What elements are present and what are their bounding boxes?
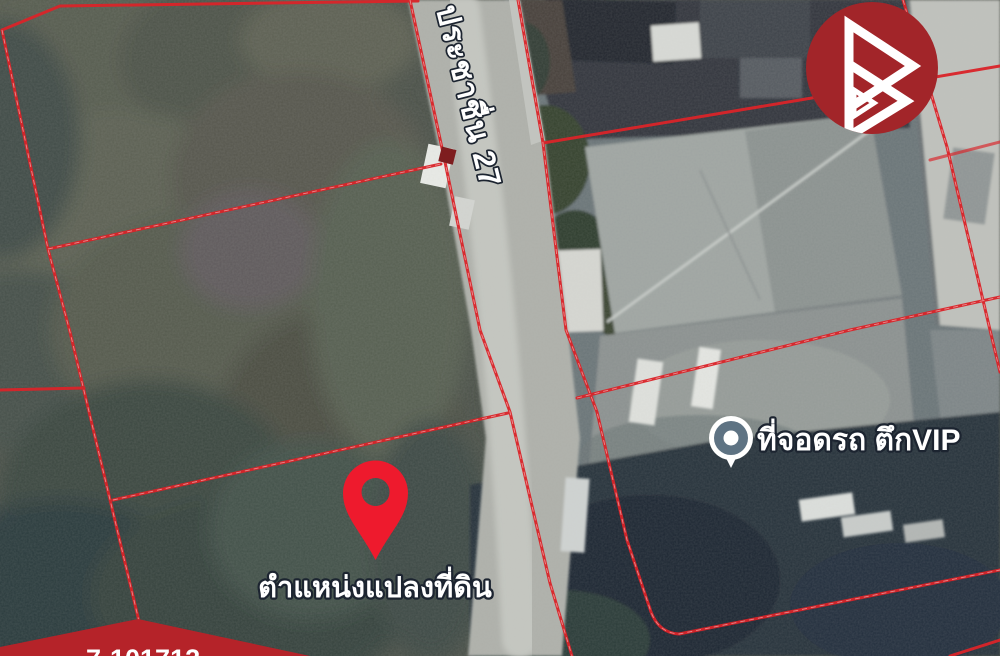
satellite-map-image: ประชาชื่น 27 ที่จอดรถ ตึกVIP ตำแหน่งแปลง… (0, 0, 1000, 656)
map-canvas: ประชาชื่น 27 ที่จอดรถ ตึกVIP ตำแหน่งแปลง… (0, 0, 1000, 656)
poi-caption: ที่จอดรถ ตึกVIP (757, 418, 960, 457)
listing-code: 7-101712 (86, 644, 200, 656)
pin-caption: ตำแหน่งแปลงที่ดิน (258, 566, 492, 604)
